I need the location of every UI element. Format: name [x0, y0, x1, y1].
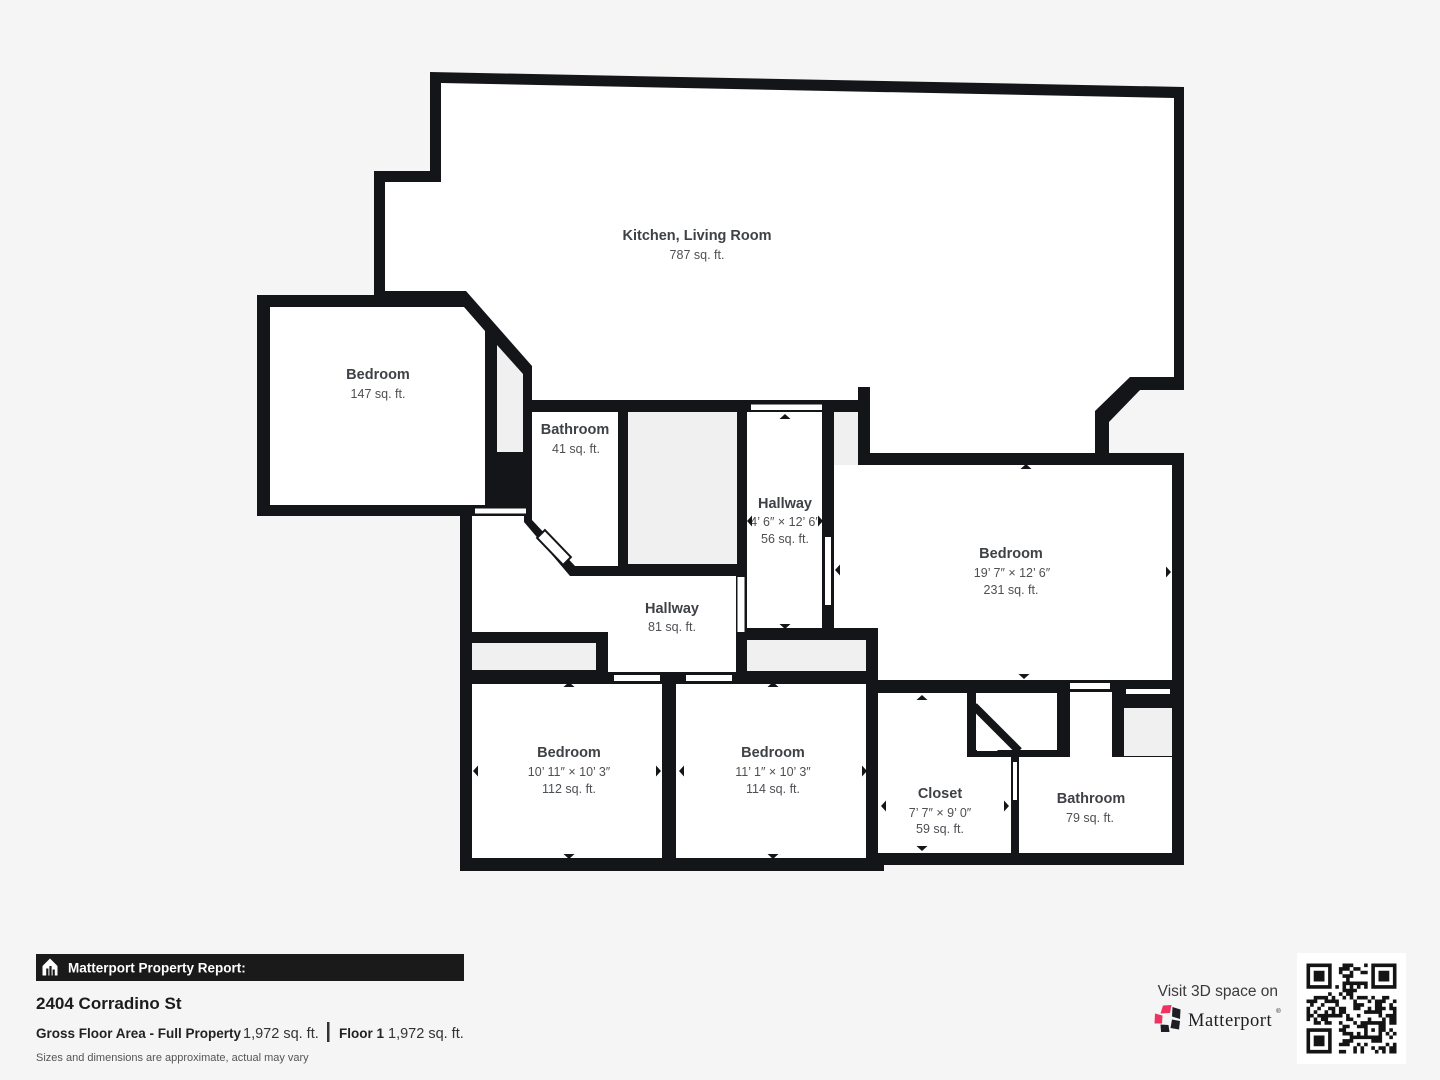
svg-text:231 sq. ft.: 231 sq. ft.: [984, 583, 1039, 597]
svg-text:2404 Corradino St: 2404 Corradino St: [36, 994, 182, 1013]
svg-text:Bedroom: Bedroom: [346, 367, 410, 383]
svg-text:Gross Floor Area - Full Proper: Gross Floor Area - Full Property: [36, 1026, 242, 1041]
svg-text:Hallway: Hallway: [645, 601, 699, 617]
svg-text:10’ 11″ × 10’ 3″: 10’ 11″ × 10’ 3″: [528, 765, 611, 779]
svg-text:Bedroom: Bedroom: [741, 745, 805, 761]
svg-text:Matterport Property Report:: Matterport Property Report:: [68, 961, 246, 976]
svg-text:Matterport: Matterport: [1188, 1011, 1272, 1031]
svg-text:4’ 6″ × 12’ 6″: 4’ 6″ × 12’ 6″: [750, 515, 820, 529]
svg-text:Bedroom: Bedroom: [979, 546, 1043, 562]
svg-text:112 sq. ft.: 112 sq. ft.: [542, 782, 596, 796]
svg-text:Visit 3D space on: Visit 3D space on: [1158, 983, 1278, 1000]
svg-text:Closet: Closet: [918, 786, 962, 802]
svg-text:56 sq. ft.: 56 sq. ft.: [761, 532, 809, 546]
svg-text:1,972 sq. ft.: 1,972 sq. ft.: [243, 1026, 319, 1042]
svg-text:114 sq. ft.: 114 sq. ft.: [746, 782, 800, 796]
svg-text:81 sq. ft.: 81 sq. ft.: [648, 620, 696, 634]
svg-text:11’ 1″ × 10’ 3″: 11’ 1″ × 10’ 3″: [735, 765, 811, 779]
svg-text:®: ®: [1276, 1007, 1281, 1015]
svg-text:7’ 7″ × 9’ 0″: 7’ 7″ × 9’ 0″: [909, 806, 972, 820]
svg-text:Hallway: Hallway: [758, 496, 812, 512]
svg-text:147 sq. ft.: 147 sq. ft.: [351, 387, 406, 401]
svg-text:Kitchen, Living Room: Kitchen, Living Room: [622, 228, 771, 244]
svg-text:Bedroom: Bedroom: [537, 745, 601, 761]
svg-text:Bathroom: Bathroom: [1057, 791, 1125, 807]
svg-text:Bathroom: Bathroom: [541, 422, 609, 438]
svg-text:1,972 sq. ft.: 1,972 sq. ft.: [388, 1026, 464, 1042]
svg-text:Sizes and dimensions are appro: Sizes and dimensions are approximate, ac…: [36, 1052, 309, 1064]
svg-text:19’ 7″ × 12’ 6″: 19’ 7″ × 12’ 6″: [974, 566, 1051, 580]
svg-text:59 sq. ft.: 59 sq. ft.: [916, 822, 964, 836]
svg-text:Floor 1: Floor 1: [339, 1026, 384, 1041]
svg-text:787 sq. ft.: 787 sq. ft.: [670, 248, 725, 262]
svg-text:79 sq. ft.: 79 sq. ft.: [1066, 811, 1114, 825]
svg-text:41 sq. ft.: 41 sq. ft.: [552, 442, 600, 456]
